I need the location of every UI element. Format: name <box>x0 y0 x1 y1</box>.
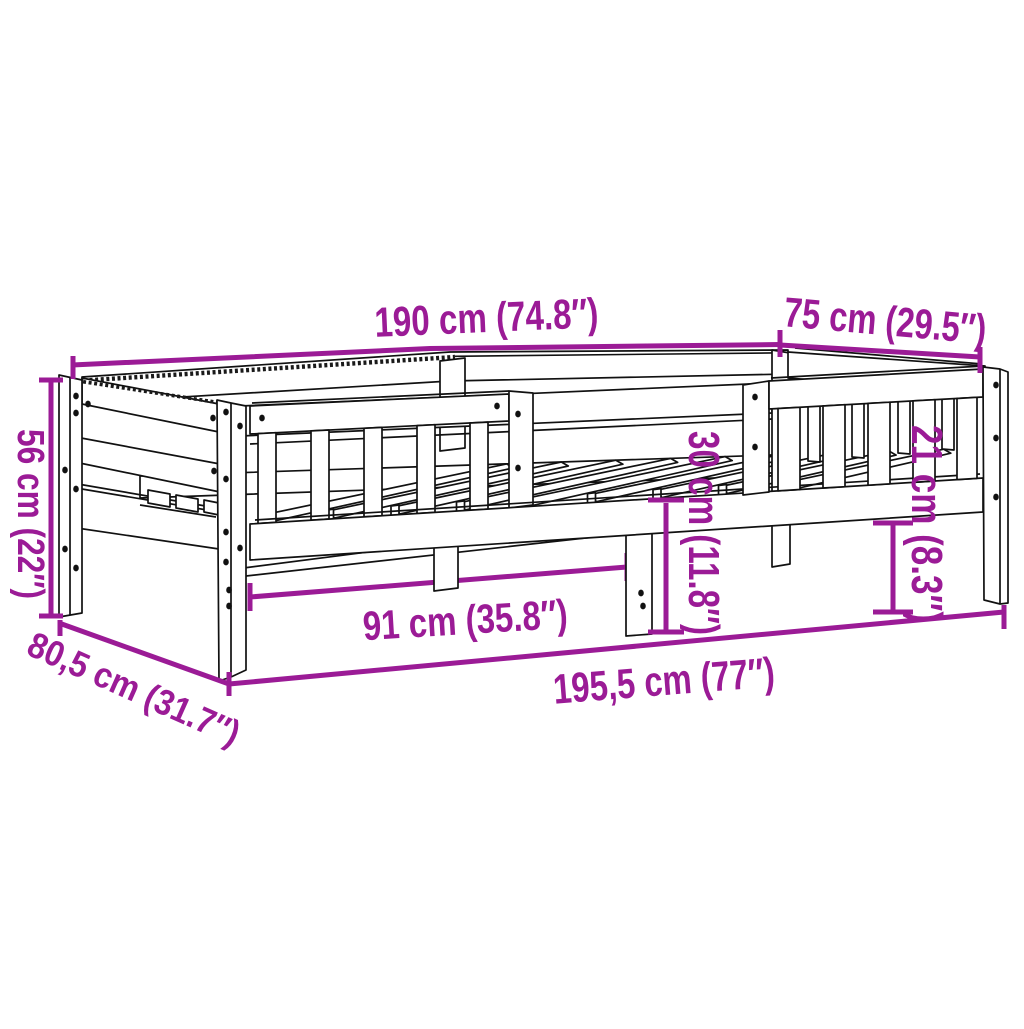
svg-text:195,5 cm (77″): 195,5 cm (77″) <box>551 648 776 712</box>
svg-text:21 cm (8.3″): 21 cm (8.3″) <box>902 425 951 623</box>
svg-text:75 cm (29.5″): 75 cm (29.5″) <box>782 288 988 353</box>
svg-text:190 cm (74.8″): 190 cm (74.8″) <box>373 289 599 346</box>
svg-text:30 cm (11.8″): 30 cm (11.8″) <box>679 431 728 635</box>
svg-text:80,5 cm (31.7″): 80,5 cm (31.7″) <box>22 623 247 753</box>
svg-text:91 cm (35.8″): 91 cm (35.8″) <box>361 591 568 649</box>
svg-text:56 cm (22″): 56 cm (22″) <box>9 429 51 599</box>
